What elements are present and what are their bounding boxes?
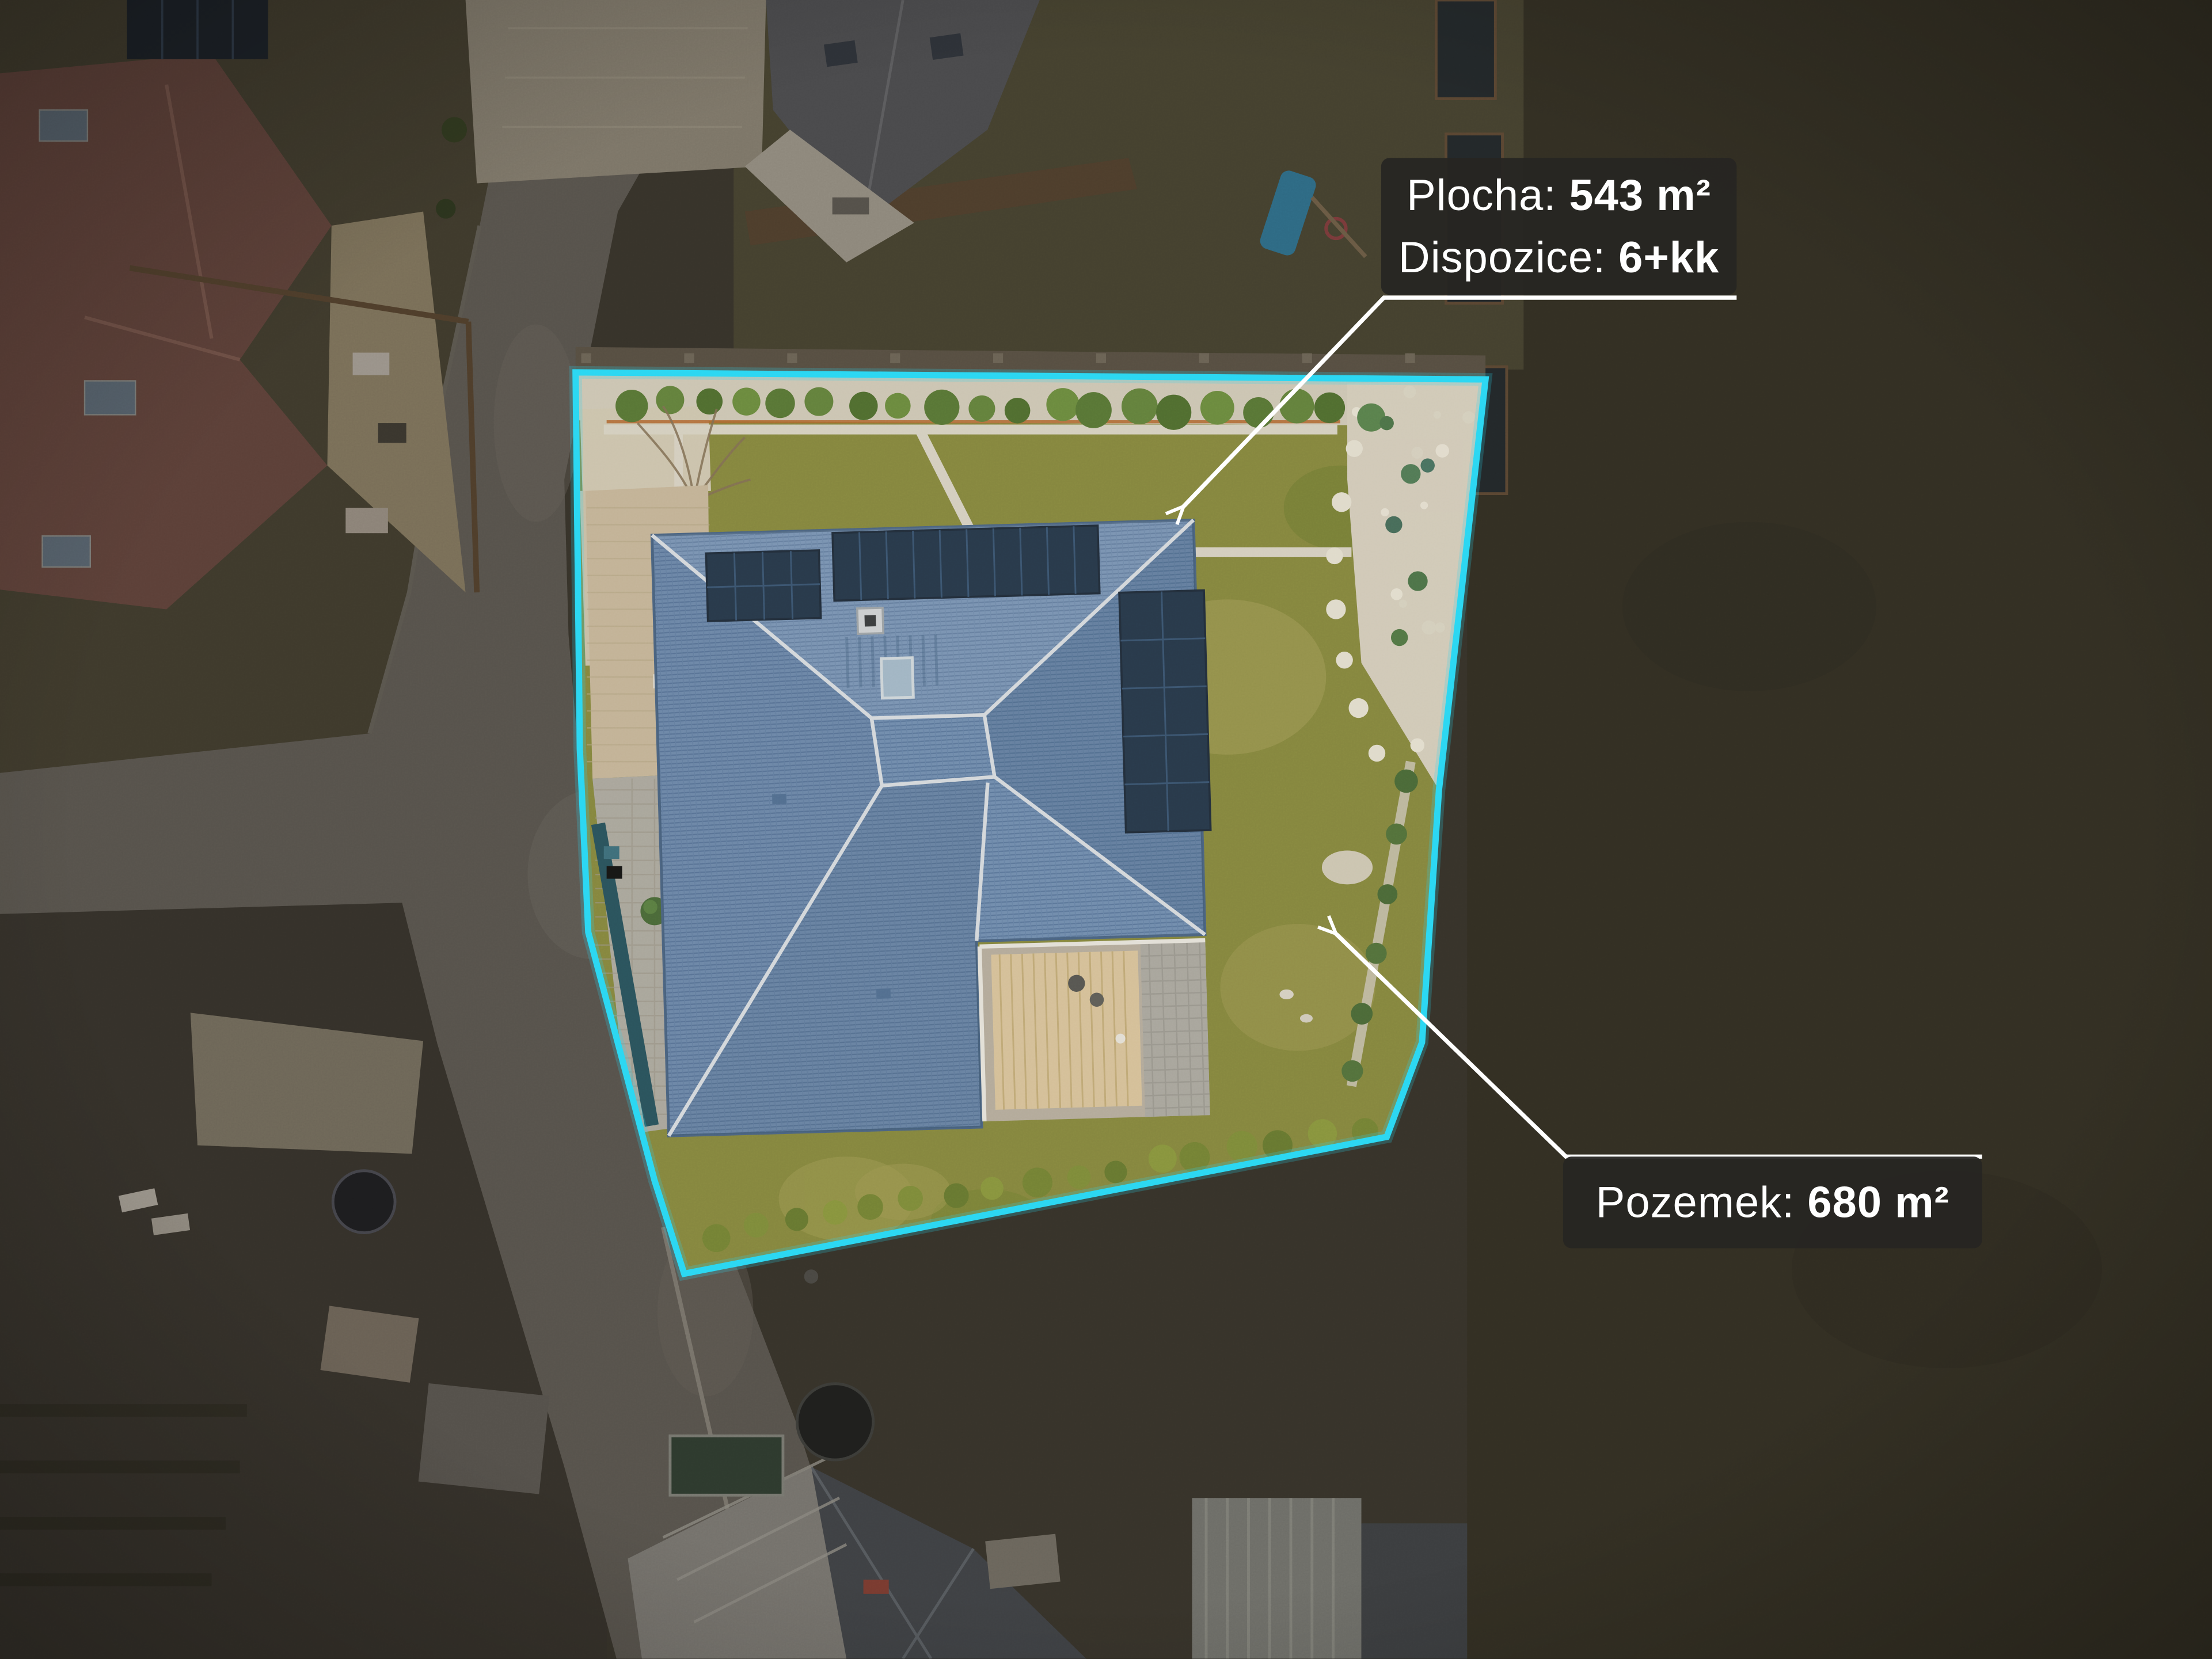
area-label-prefix: Plocha: (1407, 164, 1556, 226)
plot-label-line: Pozemek:680 m² (1596, 1159, 1949, 1246)
vignette (0, 0, 2212, 1659)
area-label-value: 543 m² (1569, 164, 1711, 226)
aerial-photo-stage: Plocha:543 m² Dispozice:6+kk Pozemek:680… (0, 0, 2212, 1659)
area-label-box: Plocha:543 m² Dispozice:6+kk (1381, 158, 1736, 295)
aerial-photo (0, 0, 2212, 1659)
disposition-label-line: Dispozice:6+kk (1398, 226, 1719, 288)
disposition-label-prefix: Dispozice: (1398, 226, 1606, 288)
plot-label-prefix: Pozemek: (1596, 1159, 1795, 1246)
plot-label-value: 680 m² (1807, 1159, 1949, 1246)
disposition-label-value: 6+kk (1618, 226, 1719, 288)
screenshot-viewport: Plocha:543 m² Dispozice:6+kk Pozemek:680… (0, 0, 2212, 1659)
area-label-line: Plocha:543 m² (1407, 164, 1711, 226)
plot-label-box: Pozemek:680 m² (1563, 1156, 1982, 1248)
